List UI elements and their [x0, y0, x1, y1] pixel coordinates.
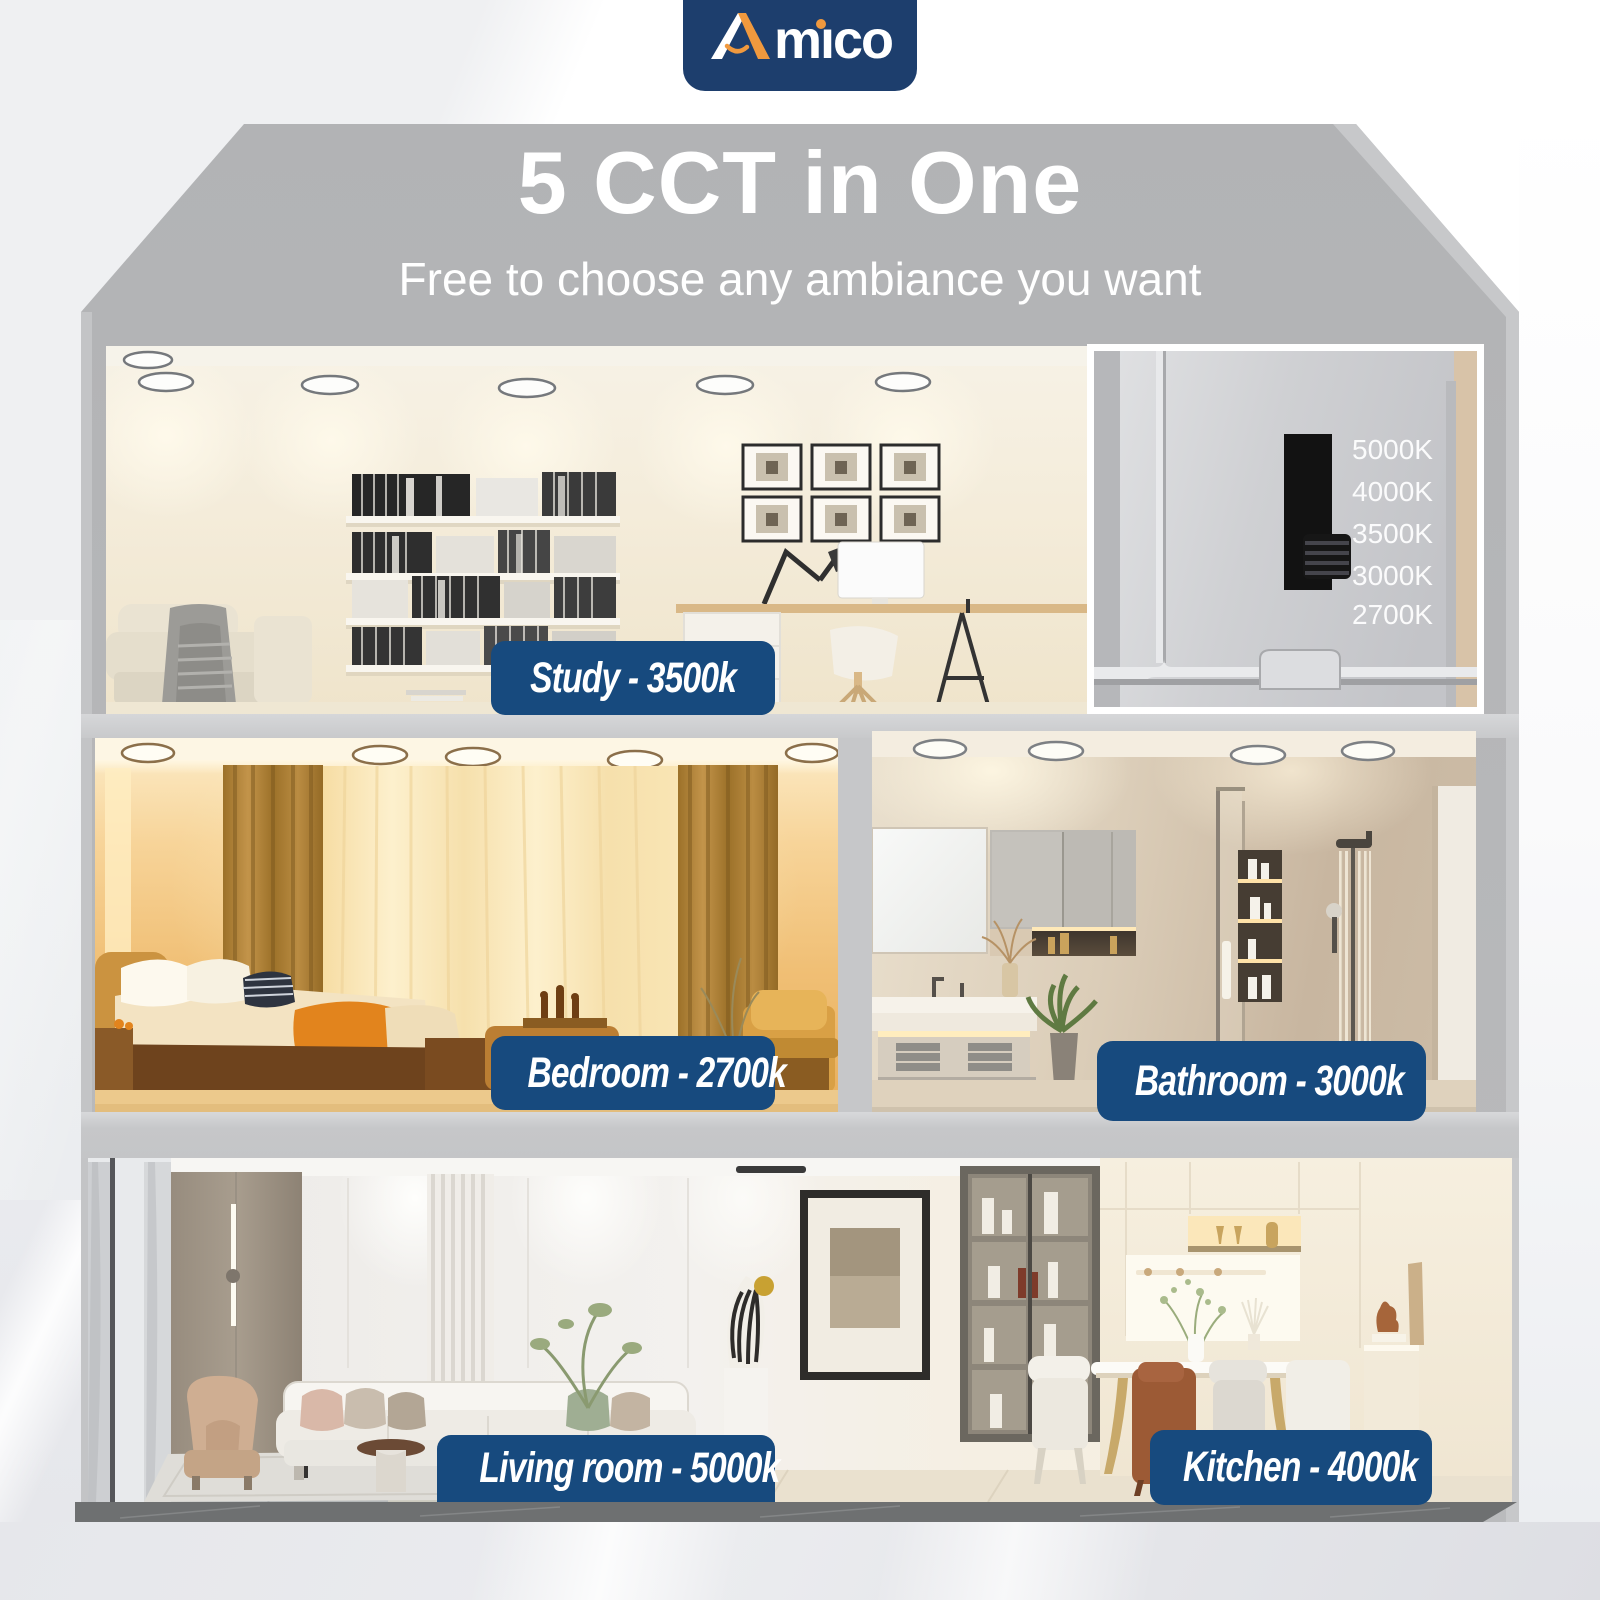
svg-text:5000K: 5000K [1352, 434, 1433, 465]
svg-text:3500K: 3500K [1352, 518, 1433, 549]
svg-text:2700K: 2700K [1352, 599, 1433, 630]
svg-text:mıco: mıco [774, 10, 892, 70]
svg-text:4000K: 4000K [1352, 476, 1433, 507]
svg-text:3000K: 3000K [1352, 560, 1433, 591]
